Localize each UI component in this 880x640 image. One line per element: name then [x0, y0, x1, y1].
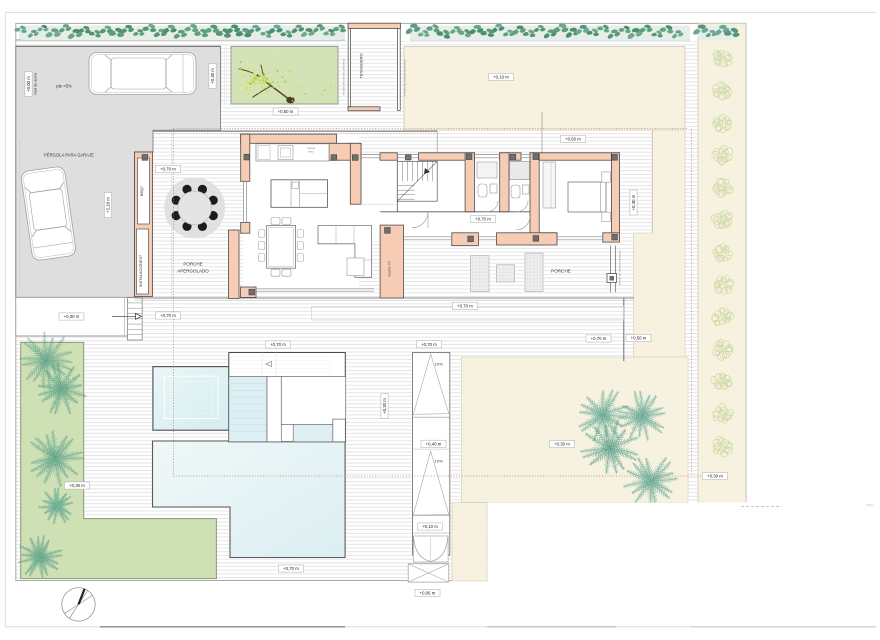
svg-text:pte <5%: pte <5%	[56, 84, 72, 89]
svg-text:PÉRGOLA PARA GARAJE: PÉRGOLA PARA GARAJE	[44, 153, 94, 158]
svg-text:murete de celosía cerámica: murete de celosía cerámica	[618, 250, 622, 286]
svg-text:+0,40 m: +0,40 m	[426, 441, 442, 446]
svg-text:+0,06 m: +0,06 m	[420, 591, 436, 596]
svg-text:+0,70 m: +0,70 m	[421, 342, 437, 347]
svg-text:+0,10 m: +0,10 m	[493, 75, 509, 80]
svg-text:+0,70 m: +0,70 m	[160, 313, 176, 318]
svg-text:murete de celosía cerámica: murete de celosía cerámica	[403, 59, 407, 96]
svg-text:+0,70 m: +0,70 m	[270, 342, 286, 347]
svg-text:APERGOLADO: APERGOLADO	[177, 269, 209, 274]
svg-text:+0,50 m: +0,50 m	[278, 109, 294, 114]
svg-text:+0,70 m: +0,70 m	[283, 566, 299, 571]
svg-text:PORCHE: PORCHE	[183, 262, 202, 267]
svg-text:+0,70 m: +0,70 m	[160, 167, 176, 172]
svg-text:+0,10 m: +0,10 m	[422, 524, 438, 529]
svg-text:INSTALACIONES?: INSTALACIONES?	[139, 255, 143, 287]
svg-text:+0,70 m: +0,70 m	[457, 304, 473, 309]
svg-text:+2,10 m: +2,10 m	[106, 197, 111, 213]
svg-text:+0,70 m: +0,70 m	[591, 336, 607, 341]
svg-text:murete de celosía cerámica: murete de celosía cerámica	[342, 58, 346, 95]
svg-text:PORCHE: PORCHE	[551, 269, 571, 274]
svg-text:+0,30 m: +0,30 m	[382, 398, 387, 414]
svg-text:+0,30 m: +0,30 m	[64, 314, 80, 319]
svg-text:+0,30 m: +0,30 m	[707, 474, 723, 479]
svg-text:+0,70 m: +0,70 m	[475, 217, 491, 222]
svg-text:TENDEDERO: TENDEDERO	[359, 53, 364, 78]
svg-text:+0,30 m: +0,30 m	[210, 68, 215, 84]
svg-text:+0,30 m: +0,30 m	[631, 194, 636, 210]
svg-text:BBQ?: BBQ?	[140, 186, 144, 196]
svg-text:10%: 10%	[434, 459, 442, 464]
svg-text:+0,50 m: +0,50 m	[631, 336, 647, 341]
svg-text:10%: 10%	[434, 362, 442, 367]
svg-text:mueble TV: mueble TV	[388, 260, 392, 277]
svg-text:+0,30 m: +0,30 m	[69, 483, 85, 488]
svg-text:nivel de acera: nivel de acera	[34, 73, 38, 95]
svg-text:+0,50 m: +0,50 m	[565, 137, 581, 142]
svg-text:+0,30 m: +0,30 m	[554, 442, 570, 447]
svg-text:+0,00 m: +0,00 m	[26, 76, 31, 92]
svg-text:vitro: vitro	[308, 149, 314, 153]
